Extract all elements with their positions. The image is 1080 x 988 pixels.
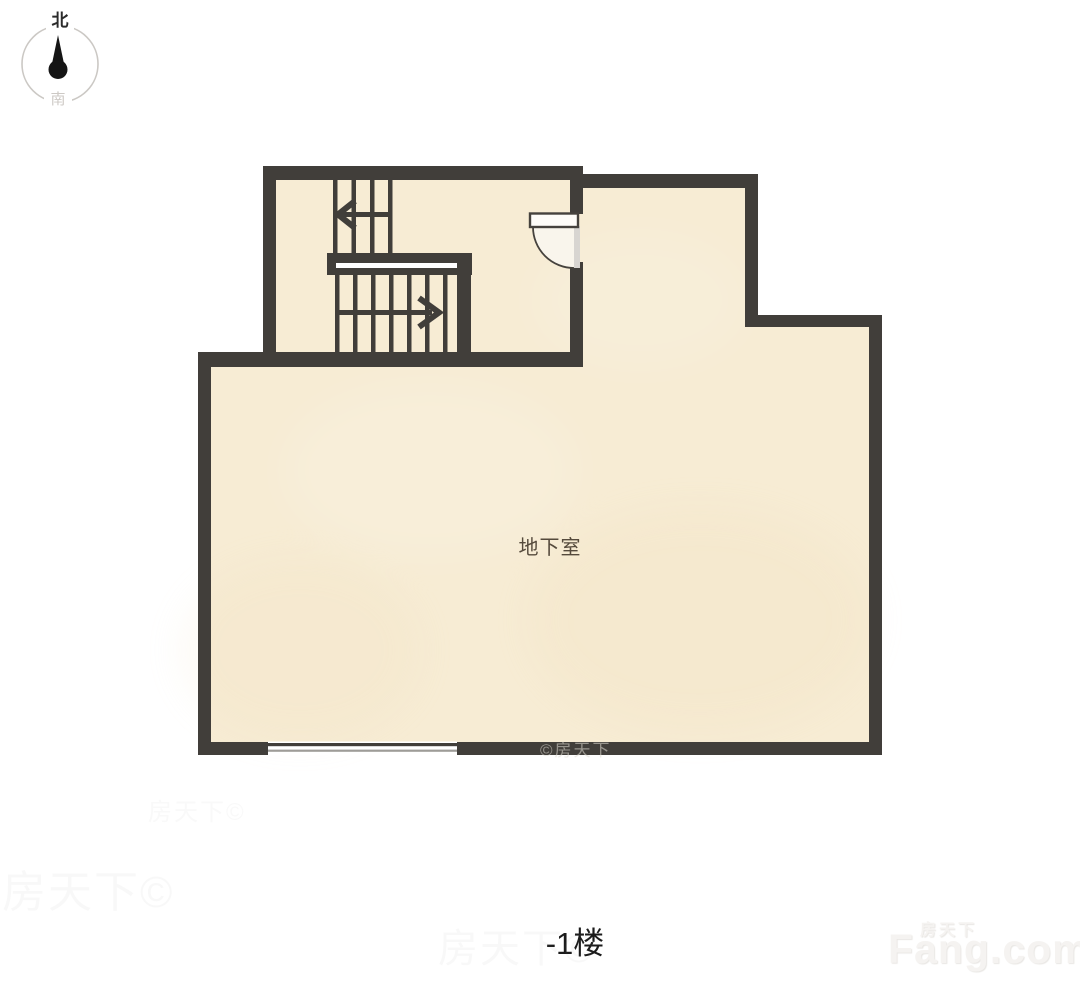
stair-landing: [327, 253, 472, 275]
ghost-watermark: 房天下©: [148, 792, 246, 827]
wall-entry-right: [745, 174, 758, 327]
door-leaf: [530, 214, 578, 228]
wall-main-right: [869, 315, 882, 755]
wall-step-top: [745, 315, 882, 327]
wall-main-left: [198, 352, 211, 755]
ghost-watermark: 房天下©: [2, 856, 174, 920]
wall-stair-top: [263, 166, 583, 180]
wall-entry-top: [583, 174, 758, 188]
stair-enclosure-wall: [457, 253, 471, 354]
wall-watermark-stamp: ©房天下: [540, 736, 612, 761]
floor-plan-drawing: [0, 0, 1080, 988]
wall-door-lower: [570, 262, 583, 367]
compass-north-label: 北: [52, 11, 69, 30]
wall-stair-bottom: [198, 352, 583, 367]
wall-door-upper: [570, 180, 583, 214]
fang-watermark-en: Fang.com: [888, 926, 1080, 973]
compass: 北 南: [6, 2, 116, 114]
compass-south-label: 南: [50, 91, 65, 108]
floor-plan-page: 北 南 地下室 -1楼 房天下 Fang.com ©房天下 房天下© 房天下© …: [0, 0, 1080, 988]
ghost-watermark: 房天下©: [438, 916, 595, 974]
fang-watermark: 房天下 Fang.com: [888, 916, 1080, 982]
window: [268, 742, 457, 756]
wall-stair-left: [263, 166, 276, 367]
room-label-basement: 地下室: [495, 531, 605, 560]
compass-needle-icon: [49, 35, 68, 79]
